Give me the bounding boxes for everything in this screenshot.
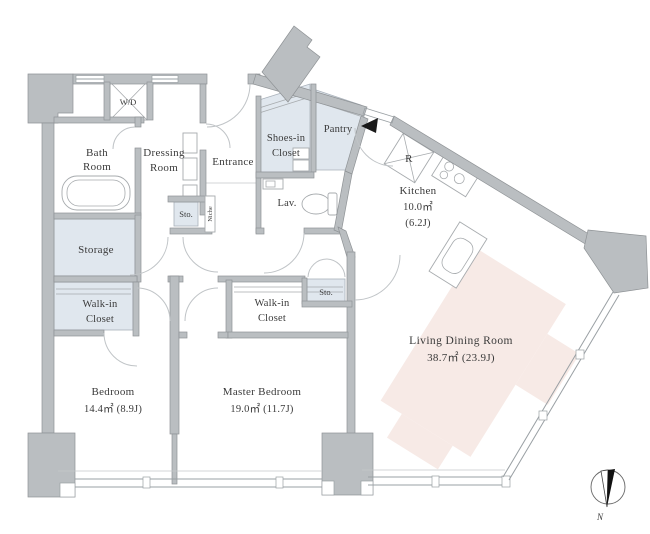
pantry-label: Pantry <box>324 124 353 135</box>
shoes-label-1: Shoes-in <box>267 133 306 144</box>
sto-bifold-door <box>327 259 345 277</box>
kitchen-label-1: Kitchen <box>400 185 437 197</box>
wd-label: W/D <box>120 97 137 107</box>
compass: N <box>591 469 625 522</box>
bath-label-2: Room <box>83 161 111 173</box>
lav-door <box>264 233 304 273</box>
living-dining-tint <box>366 248 598 501</box>
dressing-cabinet <box>183 133 197 153</box>
bath-door <box>113 127 135 149</box>
wic-master-label-1: Walk-in <box>255 298 291 309</box>
kitchen-label-3: (6.2J) <box>405 218 431 229</box>
bedroom-door <box>137 288 170 321</box>
sto-bifold-door <box>308 259 327 277</box>
dressing-door <box>206 124 230 148</box>
entrance-label: Entrance <box>212 156 254 168</box>
bedroom-label-2: 14.4㎡ (8.9J) <box>84 403 142 415</box>
sto-master-label: Sto. <box>319 287 332 297</box>
living-door <box>355 255 400 300</box>
fridge-label: R <box>405 153 413 165</box>
shoes-label-2: Closet <box>272 148 300 159</box>
shoe-cabinet <box>293 160 309 171</box>
master-bedroom-door <box>185 288 218 321</box>
bedroom-label-1: Bedroom <box>91 386 134 398</box>
bathtub <box>62 176 130 210</box>
toilet <box>302 194 330 214</box>
wic-bedroom-door <box>104 333 137 366</box>
bath-label-1: Bath <box>86 147 108 159</box>
dressing-label-2: Room <box>150 162 178 174</box>
wic-bedroom-label-2: Closet <box>86 314 114 325</box>
entrance-top-door <box>207 84 250 127</box>
kitchen-label-2: 10.0㎡ <box>403 201 433 213</box>
master-bedroom-label-1: Master Bedroom <box>223 386 302 398</box>
column <box>584 230 648 293</box>
hall-door-master <box>183 237 218 272</box>
lav-label: Lav. <box>277 198 296 209</box>
living-label-1: Living Dining Room <box>409 335 513 347</box>
niche-label: Niche <box>207 206 214 222</box>
storage-label: Storage <box>78 244 114 256</box>
wic-master-label-2: Closet <box>258 313 286 324</box>
compass-n-label: N <box>596 512 604 522</box>
wic-bedroom-label-1: Walk-in <box>83 299 119 310</box>
dressing-cabinet <box>183 158 197 180</box>
dressing-label-1: Dressing <box>143 147 185 159</box>
sto-hall-label: Sto. <box>179 209 192 219</box>
floor-plan: N W/D Bath Room Dressing Room Entrance S… <box>0 0 650 534</box>
living-label-2: 38.7㎡ (23.9J) <box>427 351 495 364</box>
floor-plan-canvas: N W/D Bath Room Dressing Room Entrance S… <box>0 0 650 534</box>
master-bedroom-label-2: 19.0㎡ (11.7J) <box>230 403 293 415</box>
